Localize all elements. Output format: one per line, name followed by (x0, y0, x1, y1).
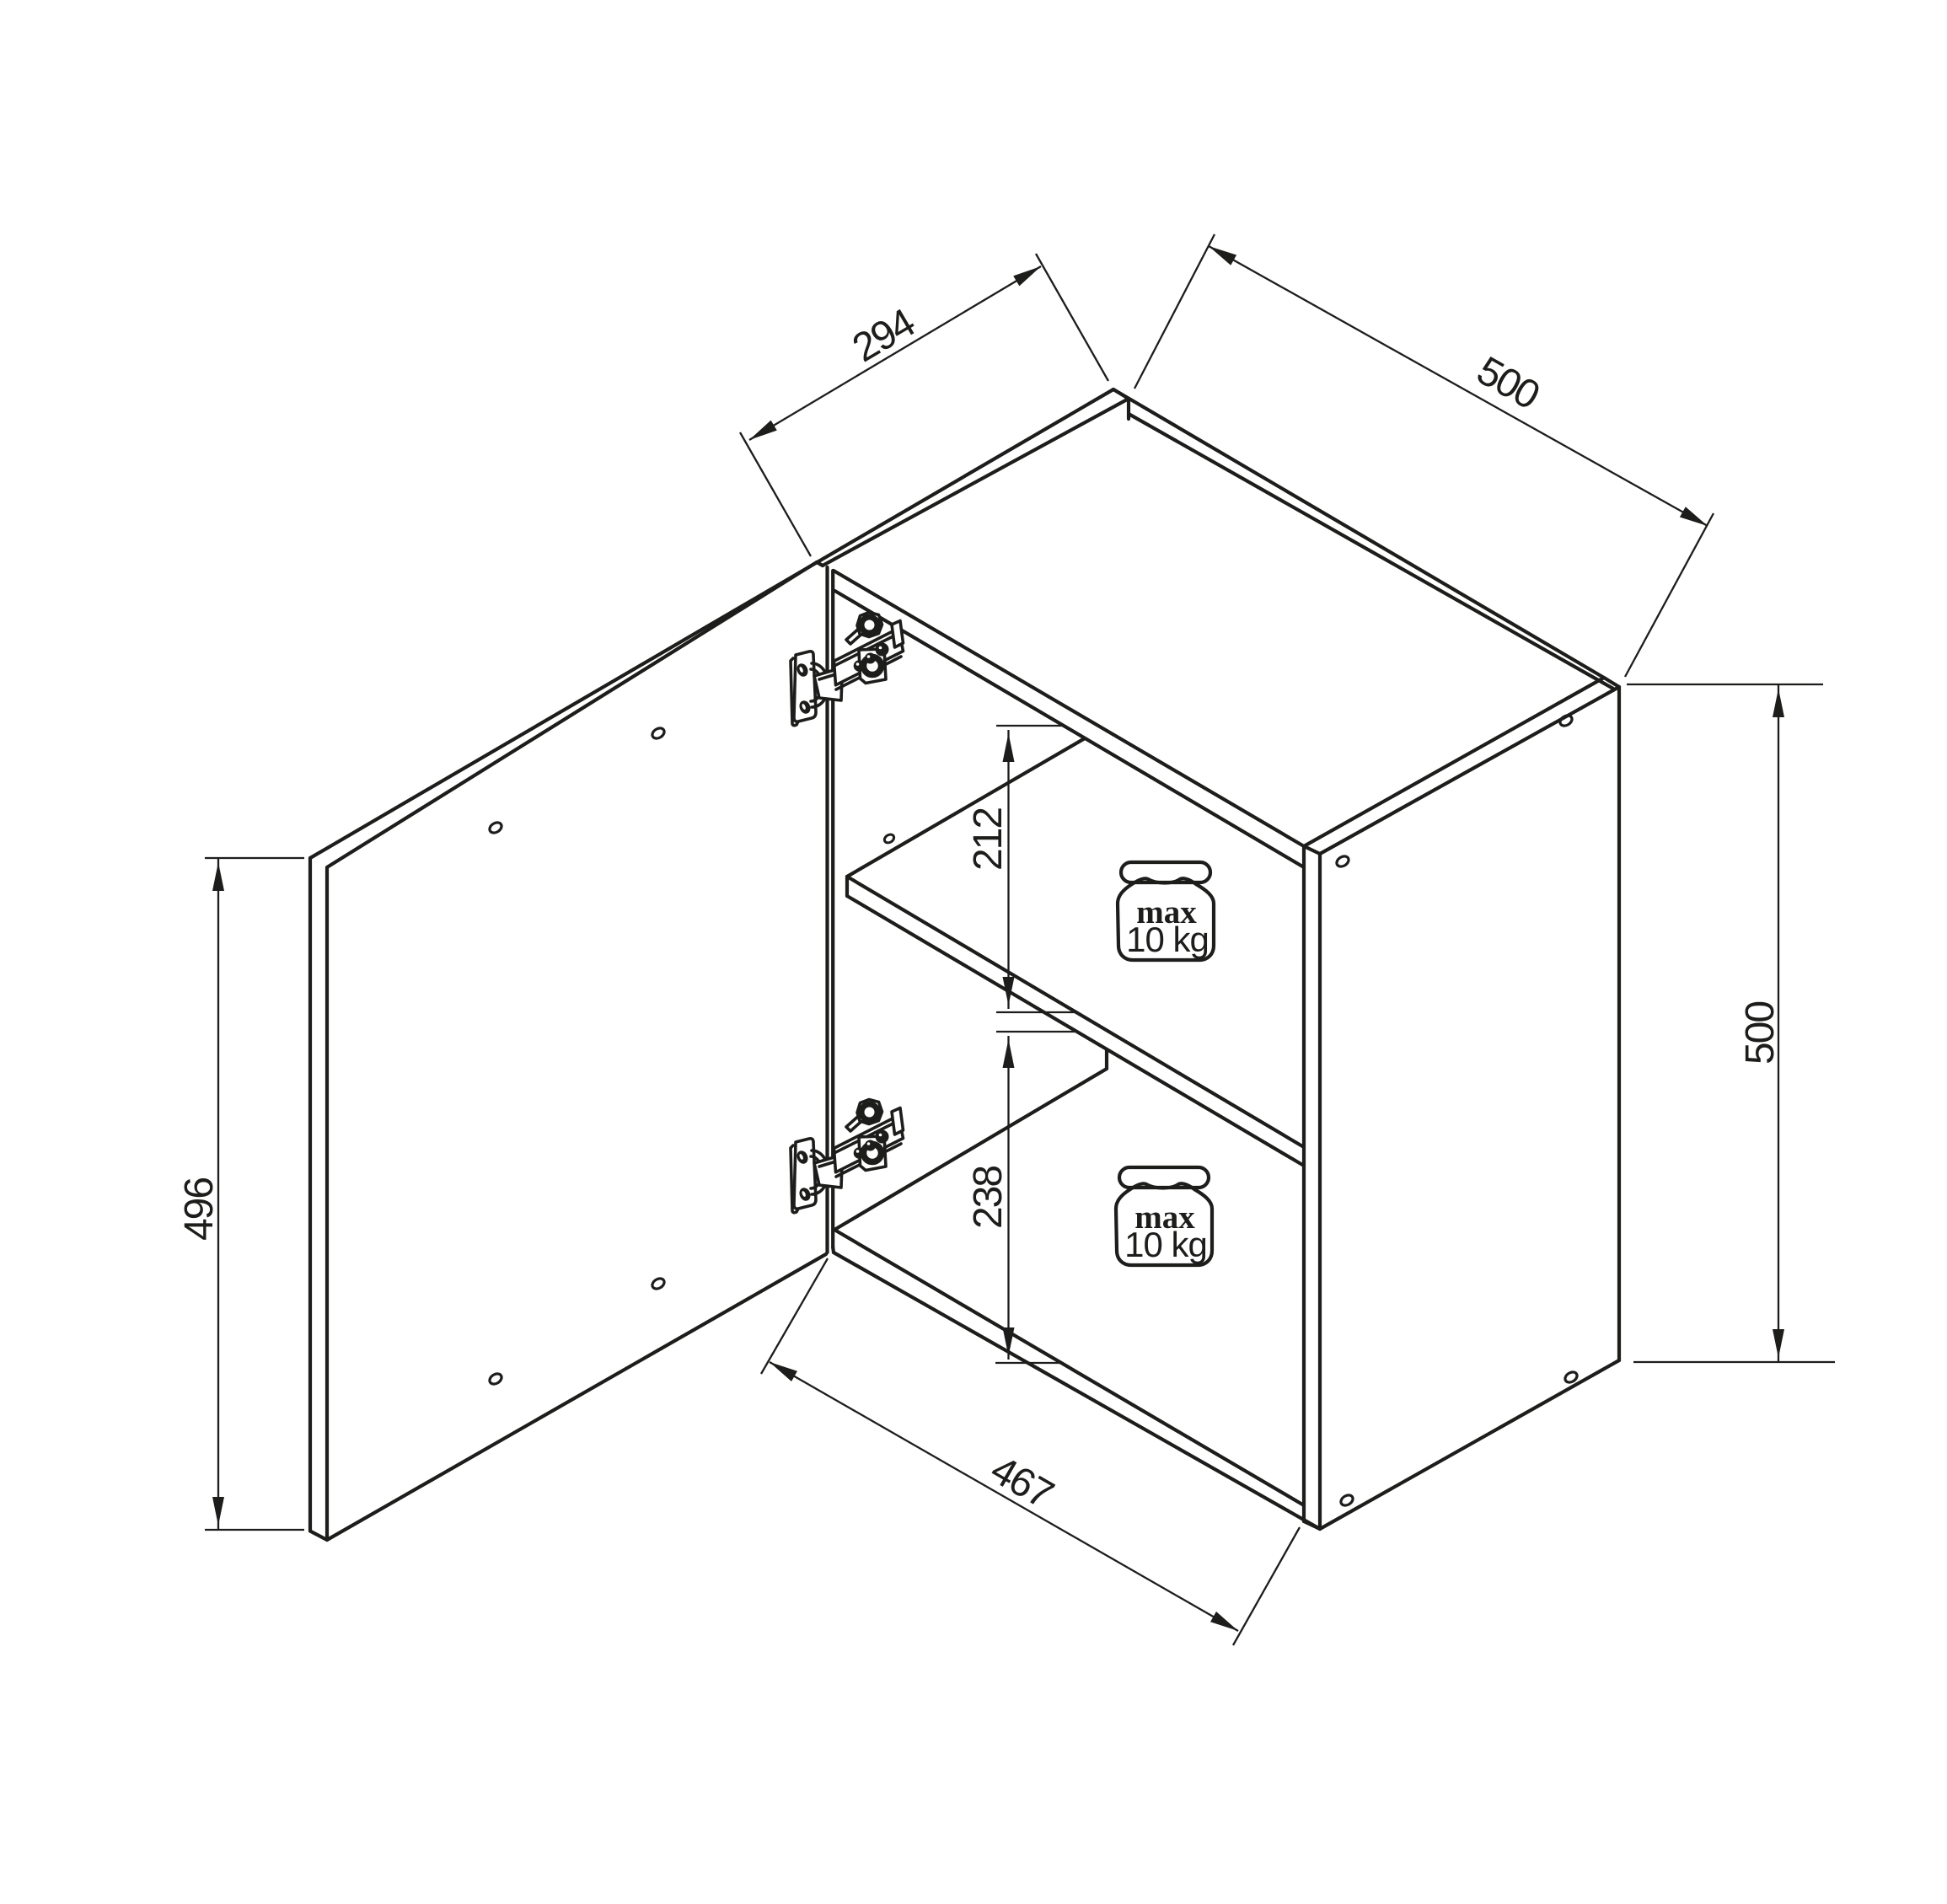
svg-text:10 kg: 10 kg (1124, 1225, 1207, 1264)
svg-text:496: 496 (177, 1178, 222, 1241)
svg-text:10 kg: 10 kg (1126, 920, 1209, 959)
svg-text:238: 238 (966, 1167, 1011, 1229)
svg-text:212: 212 (966, 808, 1011, 871)
svg-text:500: 500 (1738, 1002, 1783, 1065)
